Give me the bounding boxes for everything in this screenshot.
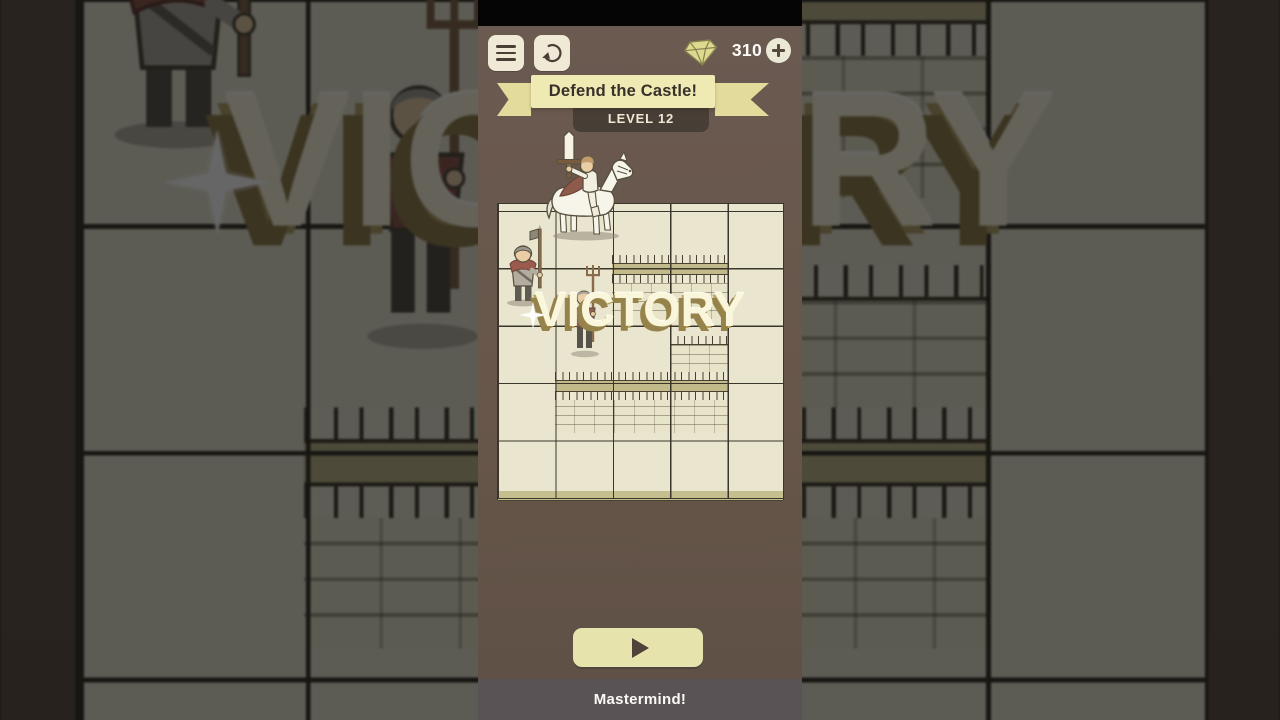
- stage: 310 LEVEL 12 Defend the Castle!: [0, 0, 1280, 720]
- banner-tail-left: [497, 83, 531, 116]
- banner: Defend the Castle!: [531, 75, 715, 108]
- play-button[interactable]: [573, 628, 703, 667]
- wall-top-col4: [670, 336, 728, 345]
- menu-button[interactable]: [488, 35, 524, 71]
- status-black-bar: [478, 0, 802, 26]
- hamburger-icon: [496, 45, 516, 61]
- add-gems-button[interactable]: [766, 38, 791, 63]
- footer-caption: Mastermind!: [594, 691, 686, 708]
- restart-button[interactable]: [534, 35, 570, 71]
- banner-tail-right: [715, 83, 769, 116]
- sparkle-icon: [520, 302, 546, 328]
- gem-icon: [684, 38, 718, 66]
- plus-icon: [772, 44, 785, 57]
- brick-wall-middle: [555, 400, 728, 433]
- brick-wall-col4: [670, 345, 728, 372]
- footer-bar: Mastermind!: [478, 679, 802, 720]
- game-screen: 310 LEVEL 12 Defend the Castle!: [478, 0, 802, 720]
- ground-strip: [498, 491, 783, 501]
- restart-icon: [537, 38, 567, 68]
- banner-title: Defend the Castle!: [549, 82, 697, 101]
- wall-band-middle: [555, 372, 728, 400]
- knight-on-horseback-sprite: [540, 130, 636, 242]
- play-icon: [632, 638, 649, 658]
- level-label: LEVEL 12: [608, 111, 674, 132]
- gem-count: 310: [716, 40, 762, 61]
- wall-band-upper: [612, 255, 728, 283]
